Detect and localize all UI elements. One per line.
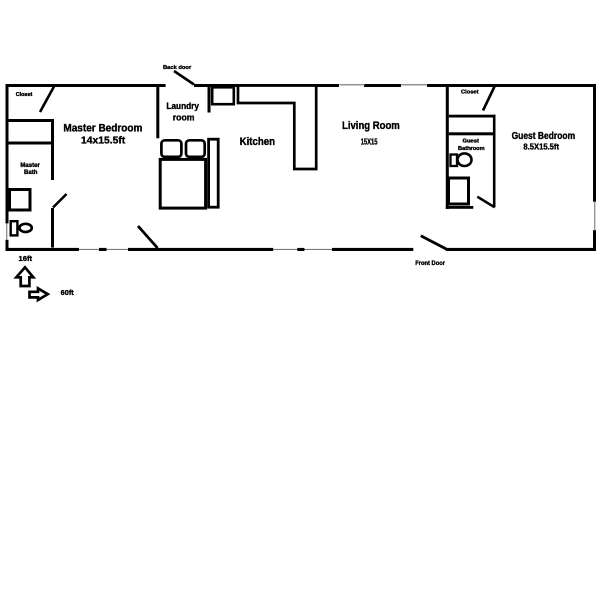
svg-text:Front Door: Front Door [415, 260, 445, 267]
svg-text:room: room [173, 112, 195, 122]
svg-text:14x15.5ft: 14x15.5ft [81, 136, 126, 147]
svg-text:Bath: Bath [24, 169, 38, 176]
svg-text:8.5X15.5ft: 8.5X15.5ft [523, 141, 559, 151]
svg-text:60ft: 60ft [61, 290, 75, 297]
svg-text:Closet: Closet [16, 92, 33, 98]
svg-text:Back door: Back door [163, 65, 192, 71]
svg-text:Living Room: Living Room [342, 120, 400, 132]
svg-text:Bathroom: Bathroom [458, 146, 485, 152]
svg-text:Master Bedroom: Master Bedroom [63, 123, 142, 135]
svg-text:Master: Master [20, 162, 40, 169]
svg-text:Guest: Guest [463, 139, 480, 145]
svg-text:16ft: 16ft [19, 256, 33, 263]
svg-text:Closet: Closet [461, 90, 479, 96]
svg-text:Kitchen: Kitchen [240, 136, 275, 148]
svg-text:15X15: 15X15 [361, 136, 378, 146]
svg-text:Laundry: Laundry [166, 101, 199, 111]
